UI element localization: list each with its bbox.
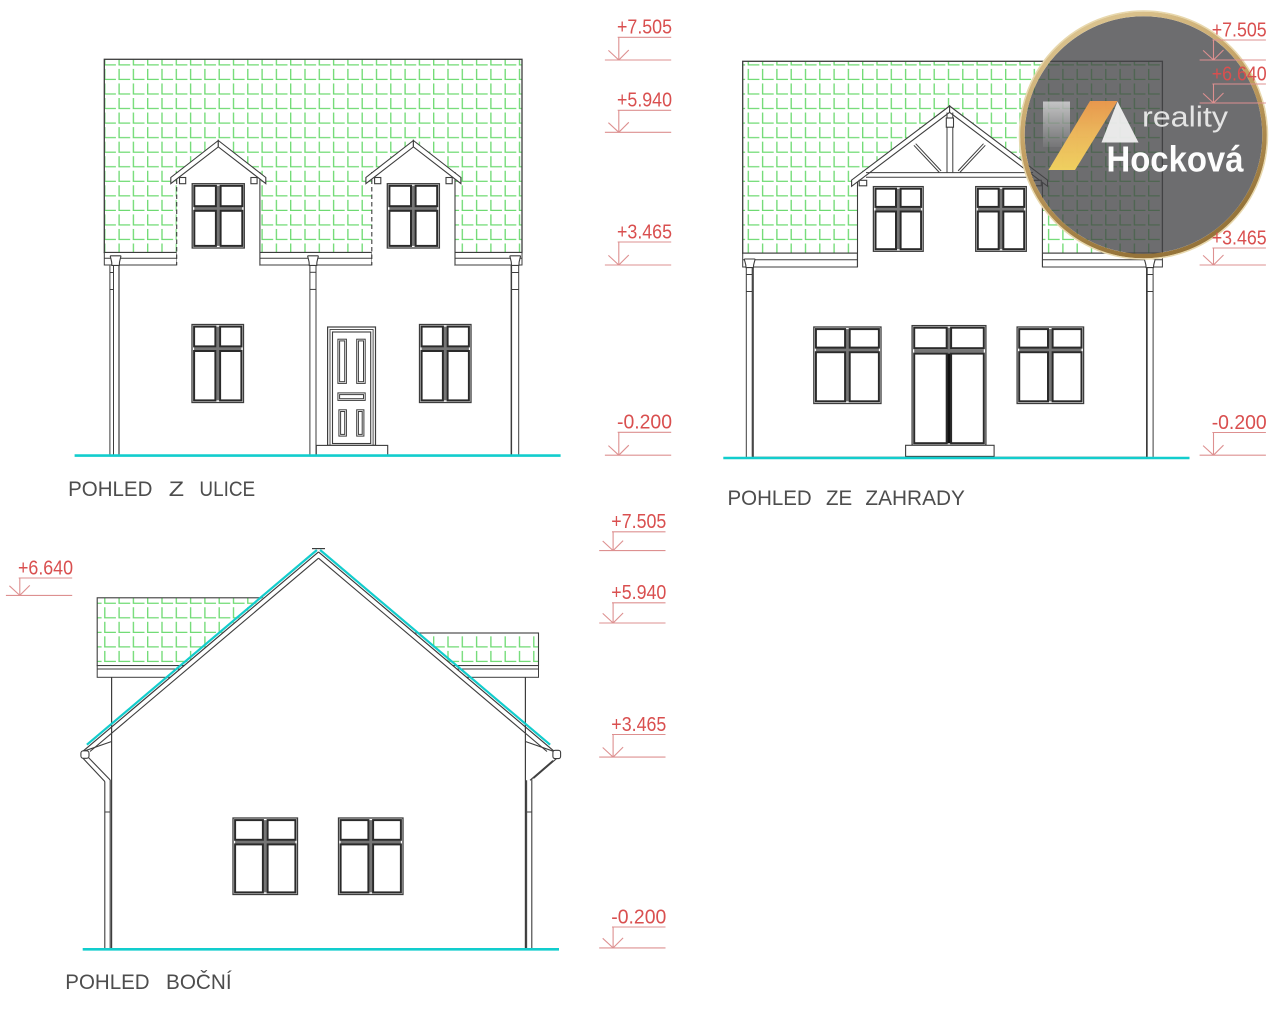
svg-text:+3.465: +3.465 [611,714,666,736]
svg-text:+7.505: +7.505 [611,511,666,533]
svg-text:+3.465: +3.465 [617,221,672,243]
svg-text:BOČNÍ: BOČNÍ [166,971,232,994]
svg-text:+5.940: +5.940 [611,582,666,604]
svg-text:+6.640: +6.640 [18,557,73,579]
svg-text:reality: reality [1142,102,1229,134]
svg-text:+7.505: +7.505 [1212,19,1267,41]
svg-text:+5.940: +5.940 [617,90,672,112]
svg-text:POHLED: POHLED [65,971,149,994]
svg-text:ULICE: ULICE [199,478,255,501]
svg-text:ZAHRADY: ZAHRADY [865,487,965,510]
svg-text:Z: Z [169,478,185,501]
svg-text:+6.640: +6.640 [1212,63,1267,85]
svg-text:-0.200: -0.200 [1212,412,1267,434]
svg-text:POHLED: POHLED [728,487,812,510]
svg-text:+3.465: +3.465 [1212,227,1267,249]
svg-text:+7.505: +7.505 [617,17,672,39]
svg-text:POHLED: POHLED [68,478,152,501]
svg-text:Hocková: Hocková [1107,139,1245,180]
svg-text:-0.200: -0.200 [617,412,672,434]
svg-text:ZE: ZE [826,487,852,510]
svg-text:-0.200: -0.200 [611,906,666,928]
